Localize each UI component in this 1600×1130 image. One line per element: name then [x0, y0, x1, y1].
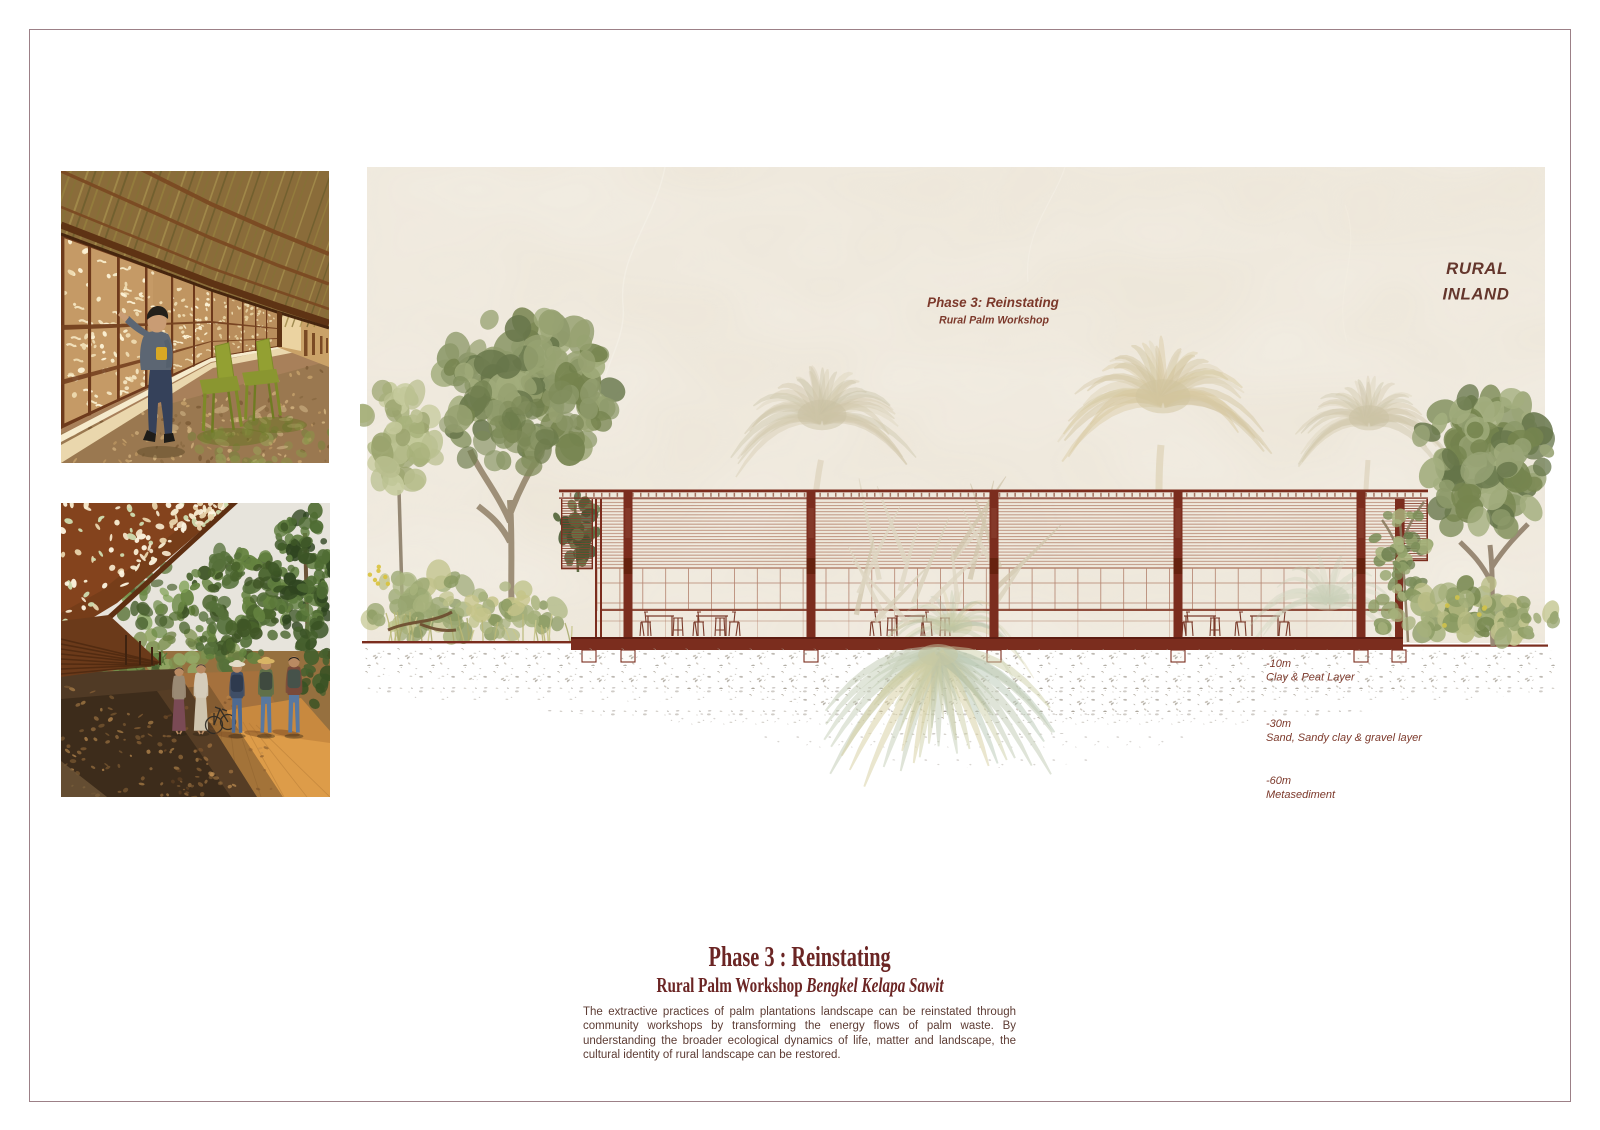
svg-text:Phase 3: Reinstating: Phase 3: Reinstating: [927, 295, 1059, 310]
svg-text:RURAL: RURAL: [1446, 259, 1508, 278]
svg-text:Sand, Sandy clay & gravel laye: Sand, Sandy clay & gravel layer: [1266, 732, 1423, 744]
svg-text:-10m: -10m: [1266, 658, 1291, 670]
svg-text:INLAND: INLAND: [1443, 285, 1510, 304]
svg-text:-30m: -30m: [1266, 718, 1291, 730]
svg-text:-60m: -60m: [1266, 775, 1291, 787]
svg-text:Clay & Peat Layer: Clay & Peat Layer: [1266, 672, 1356, 684]
svg-text:Metasediment: Metasediment: [1266, 789, 1336, 801]
svg-text:Rural Palm Workshop: Rural Palm Workshop: [939, 315, 1049, 327]
